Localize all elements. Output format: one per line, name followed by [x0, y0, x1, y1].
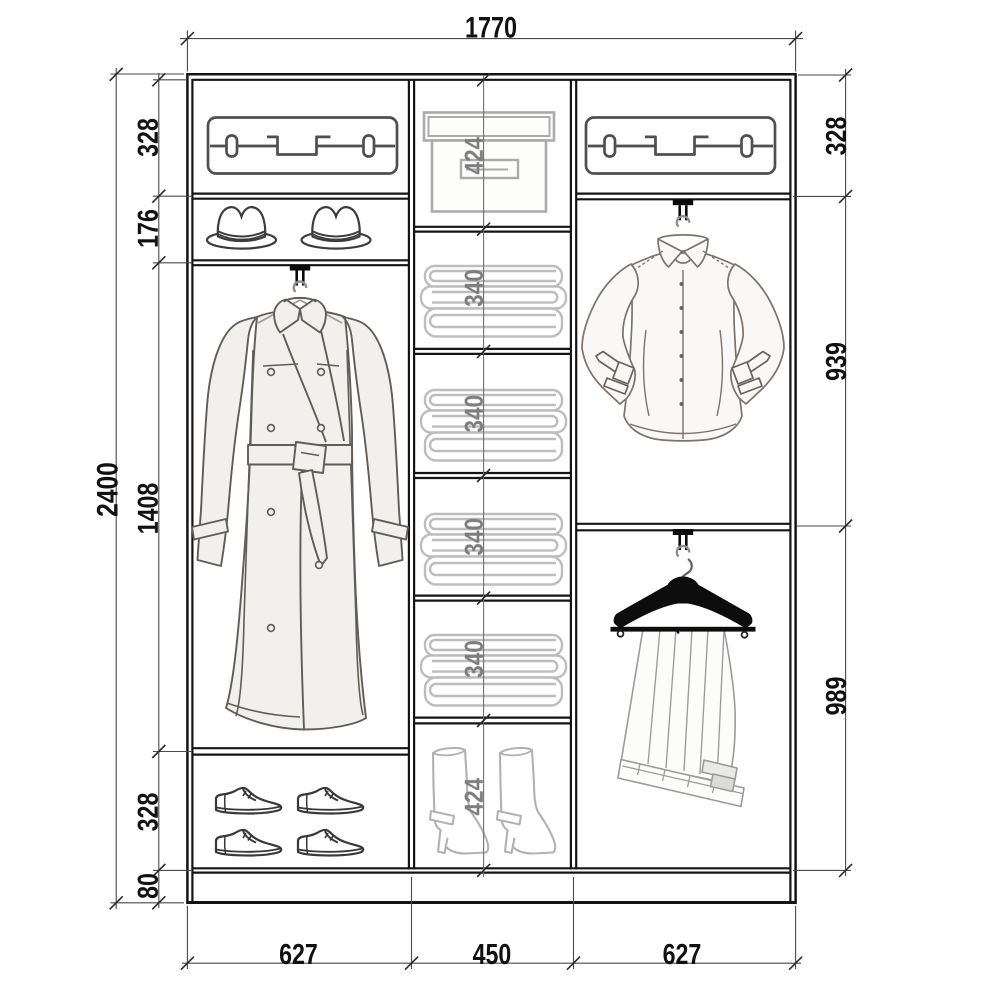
svg-text:1408: 1408 [131, 483, 164, 535]
svg-text:340: 340 [460, 395, 489, 433]
svg-text:328: 328 [819, 117, 852, 156]
svg-text:340: 340 [460, 269, 489, 307]
svg-text:450: 450 [473, 937, 512, 970]
svg-text:424: 424 [460, 136, 489, 174]
svg-text:340: 340 [460, 640, 489, 678]
svg-text:328: 328 [131, 118, 164, 157]
svg-text:424: 424 [460, 777, 489, 815]
svg-text:2400: 2400 [90, 462, 124, 517]
svg-text:627: 627 [663, 937, 702, 970]
svg-text:627: 627 [279, 937, 318, 970]
svg-text:939: 939 [819, 342, 852, 381]
svg-text:176: 176 [131, 209, 164, 248]
svg-text:328: 328 [131, 793, 164, 832]
svg-text:1770: 1770 [465, 11, 517, 44]
svg-text:989: 989 [819, 677, 852, 716]
svg-text:340: 340 [460, 518, 489, 556]
svg-text:80: 80 [131, 873, 164, 899]
